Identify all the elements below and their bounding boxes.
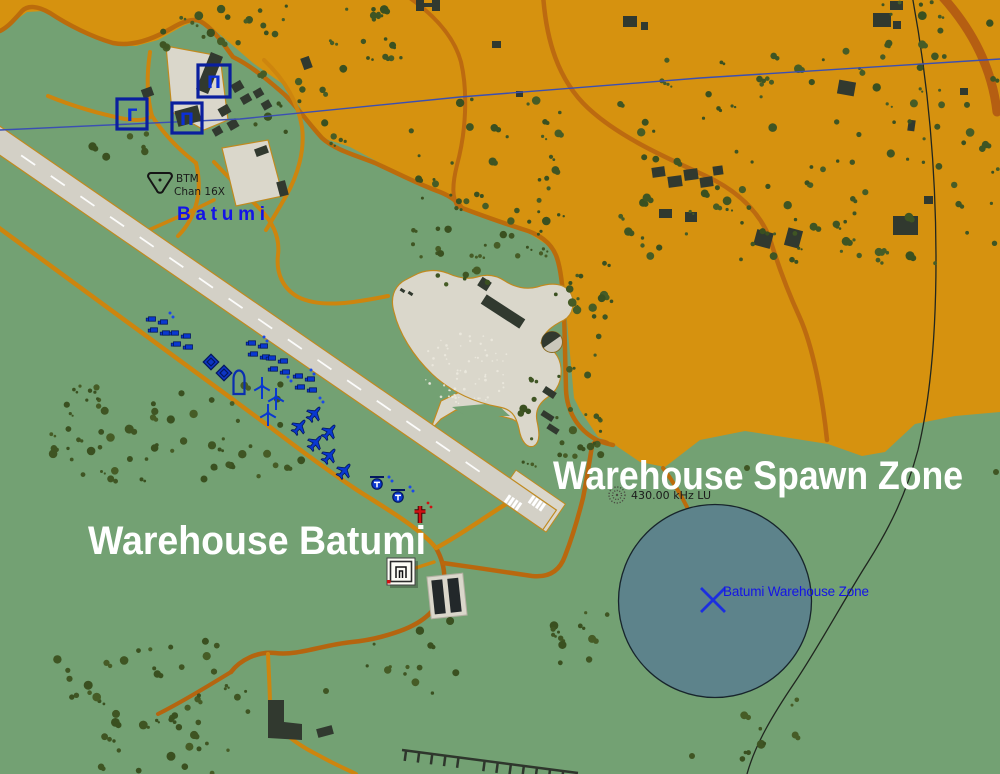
twin-roof-building	[427, 573, 467, 619]
svg-text:П: П	[180, 110, 194, 130]
trigger-zone-name-label: Batumi Warehouse Zone	[723, 584, 869, 599]
unit-status-dot	[391, 480, 394, 483]
unit-status-dot	[287, 376, 290, 379]
unit-status-dot	[290, 380, 293, 383]
unit-status-dot	[322, 401, 325, 404]
airport-name-label[interactable]: Batumi	[177, 204, 265, 225]
unit-status-dot	[172, 316, 175, 319]
unit-status-dot	[409, 486, 412, 489]
unit-status-dot	[319, 397, 322, 400]
unit-status-dot	[266, 340, 269, 343]
unit-status-dot	[313, 373, 316, 376]
unit-status-dot	[388, 476, 391, 479]
svg-text:П: П	[207, 73, 221, 93]
tacan-id-label: BTM	[176, 173, 199, 185]
unit-status-dot	[263, 336, 266, 339]
spawn-zone-annotation: Warehouse Spawn Zone	[553, 454, 963, 498]
unit-status-dot	[412, 490, 415, 493]
mission-editor-map[interactable]: Γ П П BTM Chan 16X 430.00 kHz LU	[0, 0, 1000, 774]
unit-status-dot	[169, 312, 172, 315]
warehouse-annotation: Warehouse Batumi	[88, 519, 426, 563]
tacan-channel-label: Chan 16X	[174, 186, 225, 198]
trigger-zone-batumi-warehouse[interactable]	[619, 505, 812, 698]
unit-status-dot	[310, 369, 313, 372]
svg-text:Γ: Γ	[127, 106, 138, 126]
